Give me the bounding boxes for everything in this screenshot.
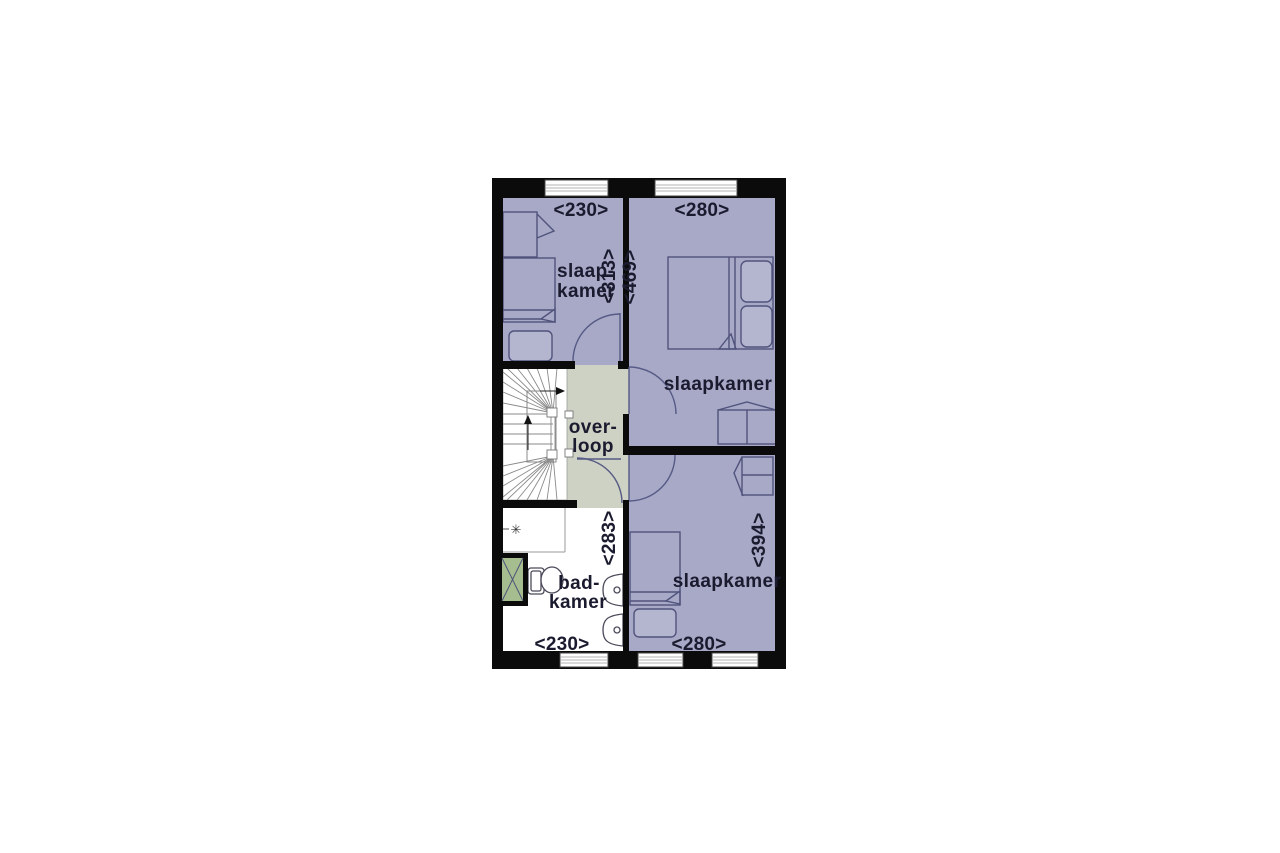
bedroom-top-left-furniture — [503, 212, 555, 361]
partition-bottom-vertical — [623, 500, 629, 651]
wall-bedroom-tl-bottom — [503, 361, 575, 369]
bedroom-top-right-width-dim: <280> — [675, 200, 730, 221]
bathroom-label-line2: kamer — [549, 592, 607, 613]
stair-step-upper — [547, 408, 557, 417]
ventilation-symbol: ✳ — [511, 522, 522, 537]
toilet-tank-lid — [531, 571, 541, 591]
floorplan-page: ✳ — [0, 0, 1280, 853]
bedroom-bottom-right-depth-dim: <394> — [749, 513, 770, 568]
bathroom-width-dim: <230> — [535, 634, 590, 655]
bedroom-top-right-depth-dim: <469> — [620, 250, 641, 305]
pillow — [634, 609, 676, 637]
window-bottom-right — [712, 653, 758, 667]
pillow — [509, 331, 552, 361]
wall-below-stairs — [492, 500, 577, 508]
wall-between-right-bedrooms — [623, 446, 786, 455]
washbasin-lower-drain — [614, 627, 620, 633]
pillow-right — [741, 306, 772, 347]
bathroom-depth-dim: <283> — [599, 511, 620, 566]
window-top-left — [545, 180, 608, 196]
landing-label-line1: over- — [569, 417, 617, 438]
landing-label-line2: loop — [572, 436, 614, 457]
wall-right — [775, 178, 786, 669]
washbasin-upper-drain — [614, 587, 620, 593]
wall-bedroom-tl-bottom-stub — [618, 361, 629, 369]
floorplan-drawing: ✳ — [0, 0, 1280, 853]
wardrobe — [742, 457, 773, 495]
bedroom-top-right-label: slaapkamer — [664, 374, 773, 395]
wardrobe — [503, 212, 537, 257]
bedroom-bottom-right-label: slaapkamer — [673, 571, 782, 592]
bedroom-top-left-depth-dim: <313> — [599, 249, 620, 304]
bed — [503, 258, 555, 322]
bathroom-label-line1: bad- — [558, 573, 600, 594]
pillow-left — [741, 261, 772, 302]
window-bottom-middle — [638, 653, 683, 667]
shower — [502, 558, 523, 601]
bed — [630, 532, 680, 605]
window-top-right — [655, 180, 737, 196]
wall-top — [492, 178, 786, 198]
stair-step-lower — [547, 450, 557, 459]
bedroom-top-left-width-dim: <230> — [554, 200, 609, 221]
window-bottom-left — [560, 653, 608, 667]
bedroom-bottom-right-width-dim: <280> — [672, 634, 727, 655]
